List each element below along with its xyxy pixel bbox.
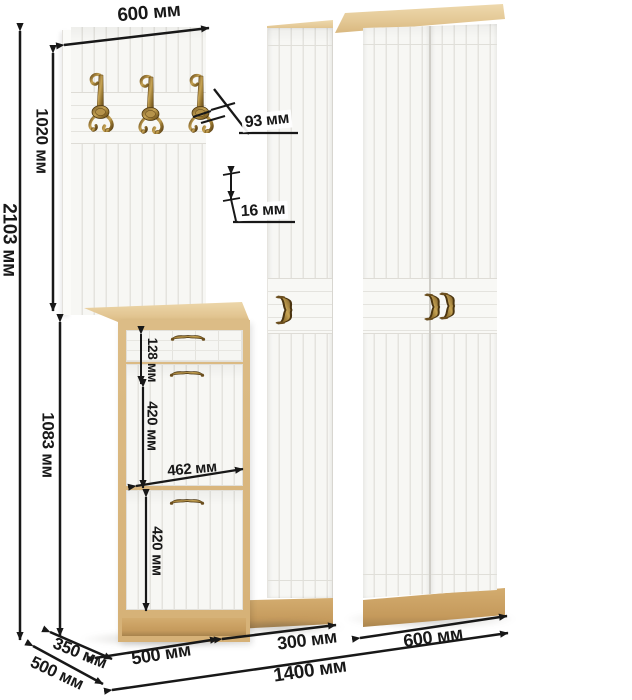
panel-side-edge — [206, 25, 215, 315]
wide-wardrobe-side-panel — [333, 13, 363, 630]
dim-label-total-width: 1400 мм — [272, 656, 347, 685]
dim-label-drawer-height: 128 мм — [145, 338, 159, 382]
coat-hook-icon — [183, 73, 215, 133]
wide-wardrobe-door-left — [363, 24, 429, 598]
dim-label-panel-thickness: 16 мм — [237, 201, 288, 222]
furniture-dimension-diagram: 600 мм 2103 мм 1020 мм 93 мм 16 мм 1083 … — [0, 0, 632, 700]
dim-label-upper-flap-height: 420 мм — [145, 401, 160, 451]
dim-label-lower-flap-height: 420 мм — [150, 526, 165, 576]
dim-label-shoe-cabinet-height: 1083 мм — [40, 412, 57, 478]
flap-handle-icon — [169, 496, 205, 506]
dim-label-panel-width-top: 600 мм — [117, 1, 182, 25]
door-handle-icon — [272, 295, 302, 325]
dim-label-panel-height: 1020 мм — [34, 108, 51, 174]
wide-wardrobe-right-edge — [497, 18, 505, 622]
flap-handle-icon — [169, 368, 205, 378]
door-handle-icon — [436, 292, 464, 320]
coat-hook-icon — [83, 72, 115, 132]
drawer-handle-icon — [170, 332, 206, 342]
shoe-cabinet-front-frame — [118, 320, 250, 642]
dim-label-inner-width: 462 мм — [167, 459, 218, 478]
panel-left-edge — [62, 30, 71, 315]
panel-face — [71, 27, 206, 315]
coat-hook-icon — [133, 74, 165, 134]
dim-label-total-height: 2103 мм — [0, 203, 19, 277]
shoe-cabinet-side-panel — [80, 306, 120, 642]
shoe-cabinet-plinth — [122, 618, 246, 636]
shoe-cabinet-lower-flap — [126, 490, 243, 610]
